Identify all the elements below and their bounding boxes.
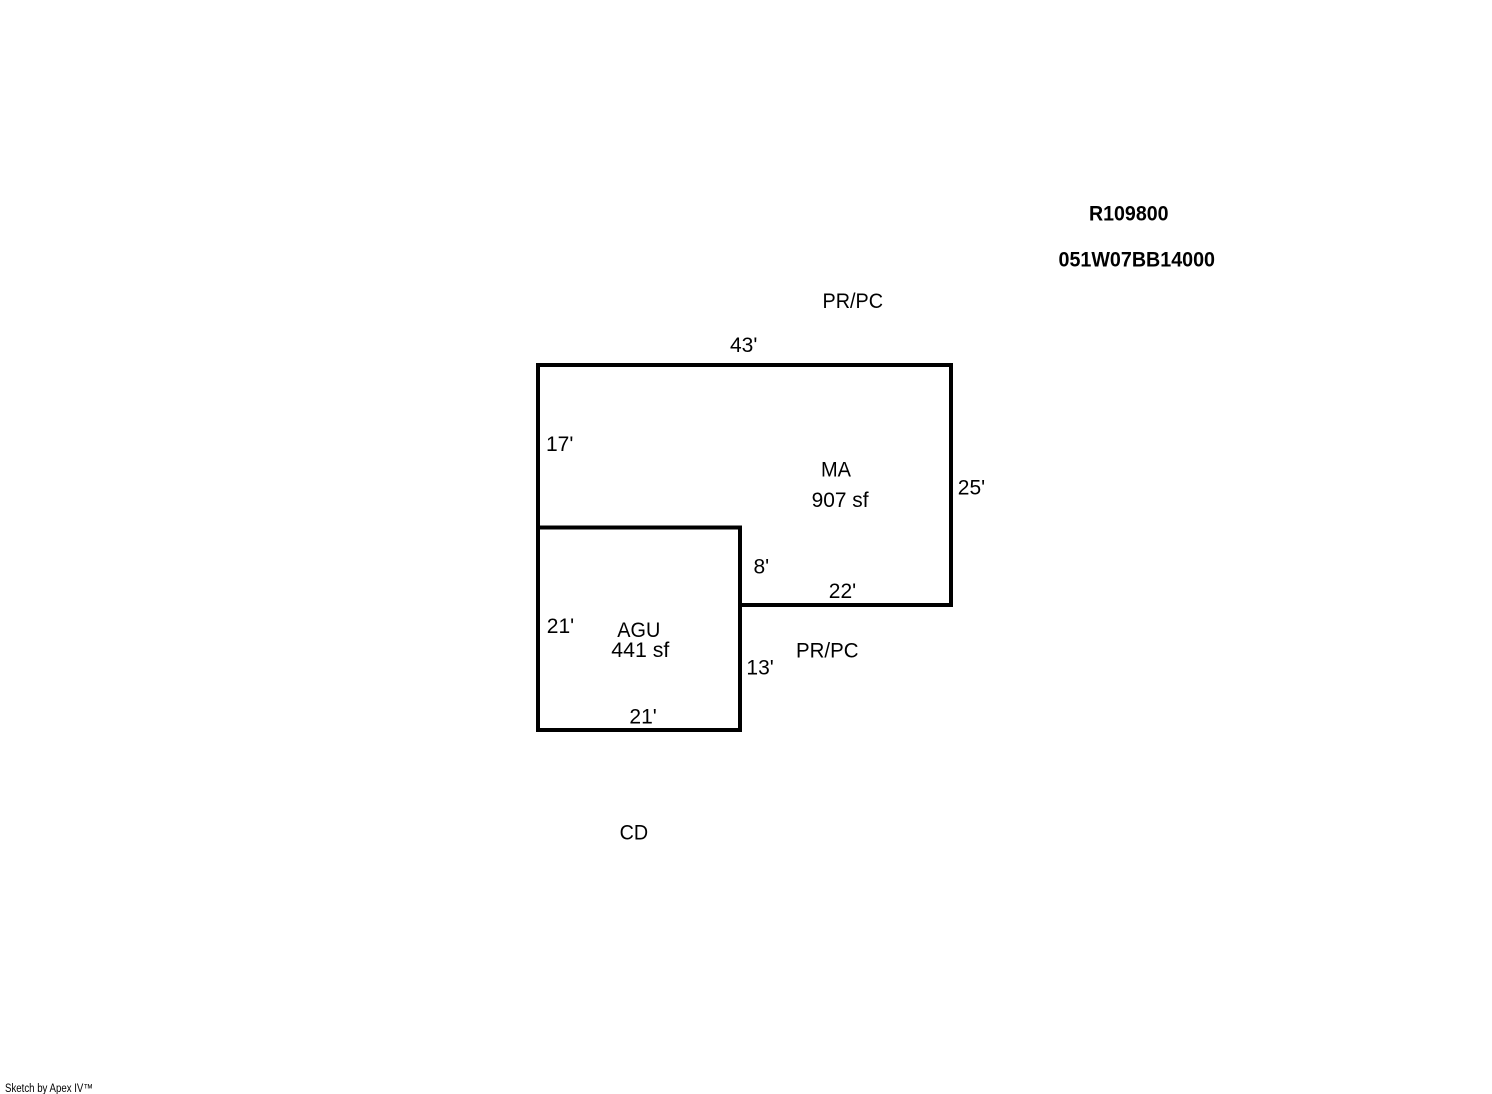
svg-text:907 sf: 907 sf xyxy=(812,489,869,512)
svg-text:Sketch by Apex IV™: Sketch by Apex IV™ xyxy=(5,1083,93,1094)
svg-text:PR/PC: PR/PC xyxy=(823,289,884,313)
svg-text:22': 22' xyxy=(829,580,856,603)
svg-text:13': 13' xyxy=(746,657,773,680)
svg-text:43': 43' xyxy=(730,334,757,357)
svg-text:8': 8' xyxy=(754,556,770,579)
svg-text:21': 21' xyxy=(629,706,656,729)
svg-text:441 sf: 441 sf xyxy=(611,639,669,662)
svg-text:CD: CD xyxy=(620,822,649,845)
svg-text:R109800: R109800 xyxy=(1089,202,1169,226)
svg-text:051W07BB14000: 051W07BB14000 xyxy=(1059,248,1216,272)
svg-text:21': 21' xyxy=(547,615,574,638)
svg-text:17': 17' xyxy=(546,433,573,456)
svg-text:MA: MA xyxy=(821,459,851,482)
svg-text:PR/PC: PR/PC xyxy=(796,638,859,662)
svg-text:25': 25' xyxy=(958,477,985,500)
